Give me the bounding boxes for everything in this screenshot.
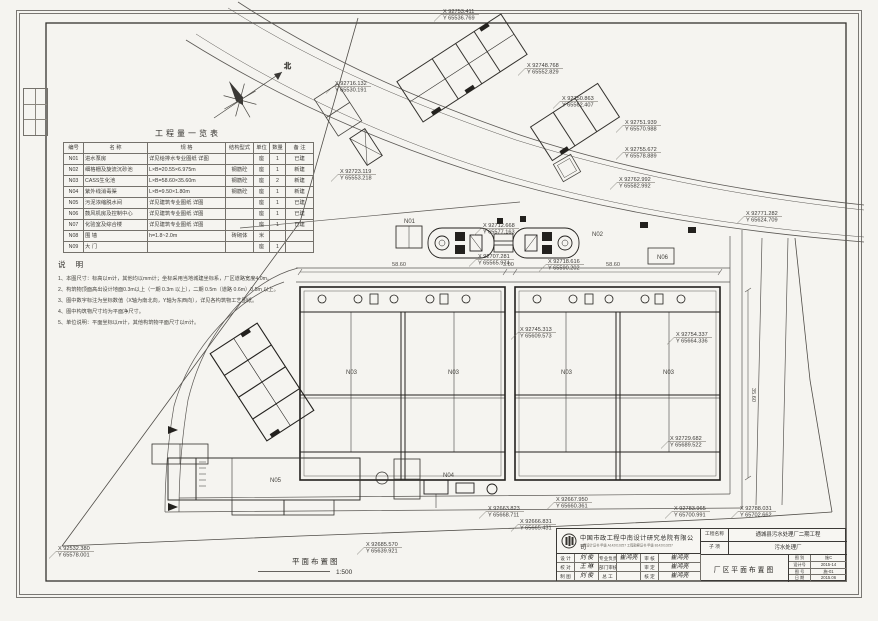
table-row: N05污泥浓缩脱水间详见建筑专业图纸 详图座1已建 [64,198,314,209]
table-cell [270,231,286,242]
coordinate-y-label: Y 65590.202 [548,266,580,272]
coordinate-x-label: X 92723.119 [340,169,371,175]
table-cell: 已建 [286,209,314,220]
table-header-row: 编号 名 称 规 格 结构型式 单位 数量 备 注 [64,143,314,154]
table-cell: N04 [64,187,84,198]
table-cell [226,209,254,220]
drawing-info-grid: 图 别施C设计号2015-14图 号施-01日 期2015.06 [789,555,847,582]
structure-label: N03 [346,370,358,376]
table-cell: 大 门 [84,242,148,253]
table-cell [226,198,254,209]
coordinate-x-label: X 92783.965 [674,506,706,512]
table-cell: N01 [64,154,84,165]
table-cell: 钢筋砼 [226,165,254,176]
coordinate-y-label: Y 65668.711 [488,513,519,519]
dimension-label: 58.60 [606,262,620,268]
col-header: 备 注 [286,143,314,154]
leader-line [737,217,744,224]
leader-line [616,153,623,160]
table-row: N02细格栅及旋流沉砂池L×B=20.55×6.975m钢筋砼座1新建 [64,165,314,176]
coordinate-x-label: X 92667.950 [556,497,588,503]
table-cell: N09 [64,242,84,253]
note-item: 3、图中数字标注为坐标数值（X轴为南北向，Y轴为东西向），详见各构筑物工艺图纸。 [58,296,283,307]
info-value: 施-01 [811,569,847,576]
coordinate-y-label: Y 65536.769 [443,16,475,22]
coordinate-x-label: X 92663.823 [488,506,520,512]
sub-project-row: 子 项 污水处理厂 [701,542,847,555]
table-cell: N05 [64,198,84,209]
project-name-value: 通城县污水处理厂二期工程 [729,529,847,541]
signature-value: 刘 俊 [575,554,599,563]
leader-line [434,15,441,22]
table-cell [226,242,254,253]
sub-project-label: 子 项 [701,542,729,554]
plan-caption: 平面布置图 1:500 [258,556,353,576]
signature-value: 崔鸿亮 [659,563,701,572]
table-cell: 围 墙 [84,231,148,242]
coordinate-x-label: X 92753.411 [443,9,474,15]
coordinate-y-label: Y 65578.001 [58,553,90,559]
note-item: 2、构筑物顶面高出设计地面0.3m以上（一期 0.3m 以上），二期 0.5m（… [58,285,283,296]
signature-value [617,563,641,572]
coordinate-y-label: Y 65639.921 [366,549,398,555]
table-cell: 1 [270,154,286,165]
coordinate-y-label: Y 65689.522 [670,443,702,449]
signature-label: 设 计 [557,554,575,563]
coordinate-y-label: Y 65609.573 [520,334,552,340]
plan-scale-label: 1:500 [336,569,353,576]
coordinate-y-label: Y 65562.407 [562,103,594,109]
table-cell: h=1.8~2.0m [148,231,226,242]
table-row: N04紫外线消毒渠L×B=9.50×1.80m钢筋砼座1新建 [64,187,314,198]
existing-building-a [397,14,527,122]
table-cell: 已建 [286,154,314,165]
table-cell: 座 [254,165,270,176]
coordinate-x-label: X 92666.831 [520,519,552,525]
note-item: 4、图中构筑物尺寸均为平面净尺寸。 [58,307,283,318]
table-cell: 细格栅及旋流沉砂池 [84,165,148,176]
sub-project-value: 污水处理厂 [729,542,847,554]
table-row: N03CASS生化池L×B=58.60×35.60m钢筋砼座2新建 [64,176,314,187]
signature-label: 专业负责 [599,554,617,563]
col-header: 数量 [270,143,286,154]
table-cell: N07 [64,220,84,231]
coordinate-y-label: Y 65660.361 [556,504,588,510]
col-header: 规 格 [148,143,226,154]
note-item: 5、单位说明：平面坐标以m计，其他构筑物平面尺寸以m计。 [58,318,283,329]
coordinate-y-label: Y 65624.709 [746,218,778,224]
table-cell: L×B=58.60×35.60m [148,176,226,187]
info-label: 图 别 [789,555,811,562]
coordinate-y-label: Y 65700.991 [674,513,706,519]
table-cell: N06 [64,209,84,220]
coordinate-y-label: Y 65665.431 [520,526,552,532]
leader-line [469,260,476,267]
leader-line [357,548,364,555]
table-cell [286,242,314,253]
signature-value: 刘 俊 [575,572,599,581]
leader-line [547,503,554,510]
coordinate-x-label: X 92685.570 [366,542,398,548]
coordinate-x-label: X 92712.668 [483,223,515,229]
signature-value: 崔鸿亮 [659,554,701,563]
cass-tank-east [515,287,720,480]
table-row: N07化验室及综合楼详见建筑专业图纸 详图座1已建 [64,220,314,231]
sludge-building [210,323,314,441]
table-cell: 新建 [286,187,314,198]
coordinate-x-label: X 92532.380 [58,546,90,552]
coordinate-x-label: X 92718.616 [548,259,580,265]
signature-value [617,572,641,581]
leader-line [49,552,56,559]
table-cell: 已建 [286,198,314,209]
table-cell: 座 [254,187,270,198]
coordinate-x-label: X 92707.281 [478,254,510,260]
table-cell [148,242,226,253]
table-cell [226,154,254,165]
coordinate-y-label: Y 65553.218 [340,176,372,182]
table-cell: 详见给排水专业图纸 详图 [148,154,226,165]
table-row: N08围 墙h=1.8~2.0m砖砌体米 [64,231,314,242]
road-lines [186,2,864,505]
table-cell: 座 [254,176,270,187]
table-cell: N02 [64,165,84,176]
coordinate-x-label: X 92762.992 [619,177,651,183]
leader-line [616,126,623,133]
table-cell: L×B=9.50×1.80m [148,187,226,198]
coordinate-y-label: Y 65570.988 [625,127,657,133]
notes-title: 说 明 [58,259,283,270]
structure-label: N05 [270,478,282,484]
table-cell: 详见建筑专业图纸 详图 [148,220,226,231]
table-cell: N03 [64,176,84,187]
table-cell: 2 [270,176,286,187]
company-logo-icon [561,533,577,549]
structure-label: N03 [448,370,460,376]
table-cell: 污泥浓缩脱水间 [84,198,148,209]
note-item: 1、本图尺寸：标高以m计，其他均以mm计；坐标采用当地城建坐标系，厂区道路宽度4… [58,274,283,285]
signature-value: 王 琳 [575,563,599,572]
table-cell: 1 [270,165,286,176]
structure-label: N03 [561,370,573,376]
leader-line [731,512,738,519]
road-culvert-2 [553,154,580,181]
table-cell: 1 [270,220,286,231]
col-header: 编号 [64,143,84,154]
drawing-sheet: 北 [0,0,878,621]
coordinate-x-label: X 92755.672 [625,147,657,153]
signature-label: 制 图 [557,572,575,581]
coordinate-y-label: Y 65578.889 [625,154,657,160]
table-cell: 座 [254,220,270,231]
road-culvert [350,129,383,166]
signature-value: 崔鸿亮 [659,572,701,581]
table-cell: N08 [64,231,84,242]
signature-label: 审 核 [641,554,659,563]
table-cell: 1 [270,242,286,253]
signature-label: 校 对 [557,563,575,572]
info-label: 设计号 [789,562,811,569]
table-cell: 化验室及综合楼 [84,220,148,231]
table-cell: 座 [254,242,270,253]
signature-label: 部门审核 [599,563,617,572]
coordinate-x-label: X 92751.939 [625,120,657,126]
coordinate-y-label: Y 65582.992 [619,184,651,190]
signature-label: 总 工 [599,572,617,581]
structure-label: N01 [404,219,416,225]
table-cell: 已建 [286,220,314,231]
info-label: 图 号 [789,569,811,576]
table-cell: 详见建筑专业图纸 详图 [148,209,226,220]
leader-line [326,87,333,94]
col-header: 单位 [254,143,270,154]
info-value: 2015-14 [811,562,847,569]
table-cell: 座 [254,154,270,165]
coordinate-x-label: X 92754.337 [676,332,708,338]
table-cell: 座 [254,209,270,220]
dimension-label: 58.60 [392,262,406,268]
notes-list: 1、本图尺寸：标高以m计，其他均以mm计；坐标采用当地城建坐标系，厂区道路宽度4… [58,274,283,329]
table-cell: 新建 [286,176,314,187]
structure-label: N06 [657,255,669,261]
leader-line [610,183,617,190]
table-cell [286,231,314,242]
plan-caption-label: 平面布置图 [292,556,340,566]
table-cell: 鼓风机房及控制中心 [84,209,148,220]
signature-value: 崔鸿亮 [617,554,641,563]
table-cell: 米 [254,231,270,242]
coordinate-y-label: Y 65552.829 [527,70,559,76]
dimension-label: 35.60 [750,388,756,402]
structure-label: N03 [663,370,675,376]
leader-line [553,102,560,109]
table-cell [226,220,254,231]
table-cell: 砖砌体 [226,231,254,242]
dimension-label: 3.00 [503,262,514,268]
coordinate-x-label: X 92771.282 [746,211,778,217]
coordinate-x-label: X 92788.031 [740,506,772,512]
table-row: N01进水泵房详见给排水专业图纸 详图座1已建 [64,154,314,165]
table-row: N09大 门座1 [64,242,314,253]
structure-label: N02 [592,232,604,238]
quantity-table-title: 工程量一览表 [63,128,313,139]
leader-line [518,69,525,76]
table-cell: 1 [270,209,286,220]
table-cell: 座 [254,198,270,209]
leader-line [667,338,674,345]
col-header: 结构型式 [226,143,254,154]
title-block: 中国市政工程中南设计研究总院有限公司 工程设计证书 甲级 A142010257 … [556,528,846,581]
table-cell: L×B=20.55×6.975m [148,165,226,176]
leader-line [661,442,668,449]
coordinate-x-label: X 92748.768 [527,63,559,69]
notes-block: 说 明 1、本图尺寸：标高以m计，其他均以mm计；坐标采用当地城建坐标系，厂区道… [58,259,283,329]
signature-grid: 设 计刘 俊专业负责崔鸿亮审 核崔鸿亮校 对王 琳部门审核审 定崔鸿亮制 图刘 … [557,554,701,581]
grit-chamber-east [513,228,579,258]
table-row: N06鼓风机房及控制中心详见建筑专业图纸 详图座1已建 [64,209,314,220]
leader-line [665,512,672,519]
uv-channel [424,480,497,508]
coordinate-x-label: X 92729.682 [670,436,702,442]
leader-line [331,175,338,182]
table-cell: 详见建筑专业图纸 详图 [148,198,226,209]
signature-label: 核 定 [641,572,659,581]
col-header: 名 称 [84,143,148,154]
pump-house [396,226,422,248]
company-certificates: 工程设计证书 甲级 A142010257 工程勘察证书 甲级 B14201025… [580,544,688,549]
structure-label: N04 [443,473,455,479]
info-value: 2015.06 [811,575,847,582]
coordinate-x-label: X 92750.863 [562,96,594,102]
table-cell: 新建 [286,165,314,176]
table-cell: 钢筋砼 [226,176,254,187]
table-cell: 进水泵房 [84,154,148,165]
leader-line [479,512,486,519]
table-cell: 1 [270,198,286,209]
project-name-row: 工程名称 通城县污水处理厂二期工程 [701,529,847,542]
margin-sign-grid [23,88,48,136]
north-label: 北 [284,62,291,70]
coordinate-x-label: X 92716.132 [335,81,367,87]
table-cell: CASS生化池 [84,176,148,187]
coordinate-y-label: Y 65702.662 [740,513,772,519]
info-label: 日 期 [789,575,811,582]
project-name-label: 工程名称 [701,529,729,541]
quantity-table: 工程量一览表 编号 名 称 规 格 结构型式 单位 数量 备 注 N01进水泵房… [63,128,313,253]
coordinate-x-label: X 92745.313 [520,327,552,333]
drawing-title: 厂区平面布置图 [701,555,789,582]
title-block-company: 中国市政工程中南设计研究总院有限公司 工程设计证书 甲级 A142010257 … [557,529,701,554]
leader-line [474,229,481,236]
table-cell: 1 [270,187,286,198]
existing-building-b [531,83,620,160]
coordinate-y-label: Y 65664.336 [676,339,708,345]
cass-tank-west [300,287,505,480]
quantity-table-body: N01进水泵房详见给排水专业图纸 详图座1已建N02细格栅及旋流沉砂池L×B=2… [64,154,314,253]
north-arrow: 北 [213,62,291,126]
table-cell: 钢筋砼 [226,187,254,198]
coordinate-y-label: Y 65577.163 [483,230,515,236]
coordinate-y-label: Y 65530.191 [335,88,367,94]
table-cell: 紫外线消毒渠 [84,187,148,198]
signature-label: 审 定 [641,563,659,572]
info-value: 施C [811,555,847,562]
